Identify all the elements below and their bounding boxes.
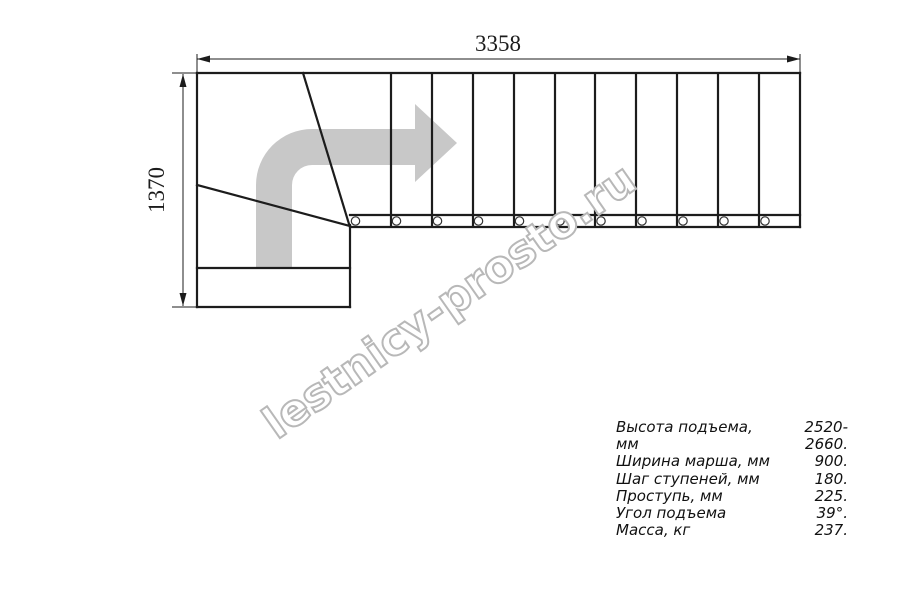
spec-value: 225. — [815, 488, 848, 505]
spec-row-rise-height: Высота подъема, мм 2520-2660. — [616, 419, 848, 453]
spec-label: Высота подъема, мм — [616, 419, 768, 453]
spec-value: 2520-2660. — [768, 419, 848, 453]
spec-label: Ширина марша, мм — [616, 453, 770, 470]
direction-arrow-icon — [256, 104, 457, 268]
spec-row-tread-depth: Проступь, мм 225. — [616, 488, 848, 505]
spec-label: Проступь, мм — [616, 488, 723, 505]
spec-table: Высота подъема, мм 2520-2660. Ширина мар… — [616, 419, 848, 539]
spec-row-flight-width: Ширина марша, мм 900. — [616, 453, 848, 470]
spec-value: 180. — [815, 471, 848, 488]
spec-label: Шаг ступеней, мм — [616, 471, 760, 488]
staircase-plan-drawing: 3358 1370 lestnicy-prosto.ru Высота подъ… — [0, 0, 900, 600]
top-dimension-label: 3358 — [475, 31, 521, 56]
spec-label: Масса, кг — [616, 522, 690, 539]
spec-value: 237. — [815, 522, 848, 539]
spec-row-climb-angle: Угол подъема 39°. — [616, 505, 848, 522]
spec-row-step-pitch: Шаг ступеней, мм 180. — [616, 471, 848, 488]
spec-row-mass: Масса, кг 237. — [616, 522, 848, 539]
spec-label: Угол подъема — [616, 505, 726, 522]
spec-value: 900. — [815, 453, 848, 470]
left-dimension-label: 1370 — [144, 167, 169, 213]
spec-value: 39°. — [817, 505, 848, 522]
